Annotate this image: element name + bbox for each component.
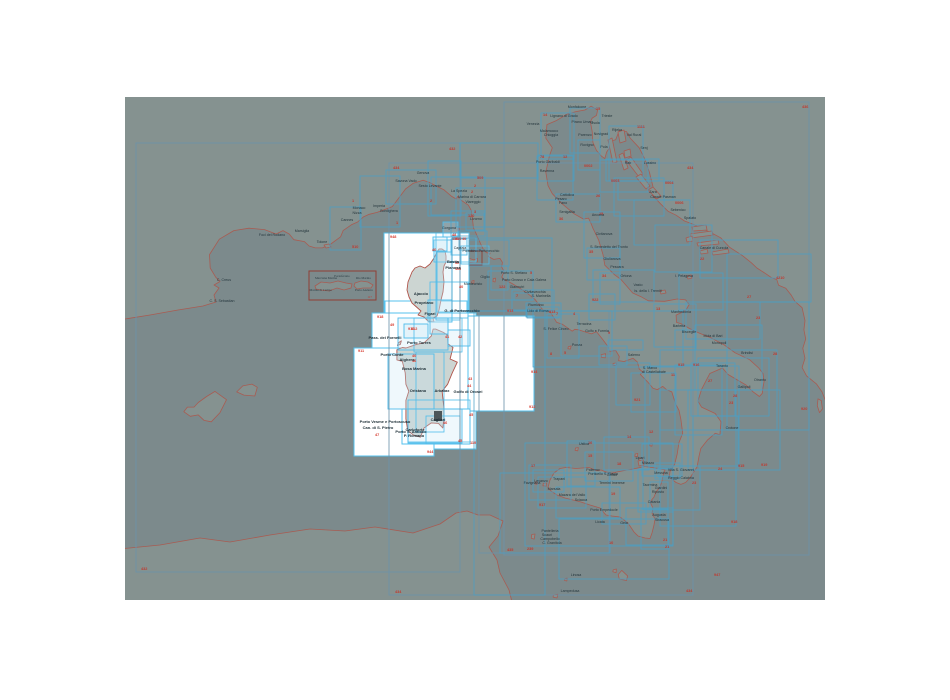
svg-text:Giglio: Giglio	[480, 275, 489, 279]
svg-text:C. Granitola: C. Granitola	[542, 541, 561, 545]
svg-text:919: 919	[761, 463, 767, 467]
svg-text:Val Rural: Val Rural	[627, 133, 642, 137]
svg-text:239: 239	[527, 547, 533, 551]
svg-text:12: 12	[649, 430, 653, 434]
svg-text:944: 944	[427, 450, 434, 454]
svg-text:Viareggio: Viareggio	[465, 200, 480, 204]
svg-text:Manfredonia: Manfredonia	[671, 310, 691, 314]
svg-text:911: 911	[358, 349, 364, 353]
svg-text:Ortona: Ortona	[621, 274, 632, 278]
svg-text:Termini Imerese: Termini Imerese	[599, 481, 625, 485]
svg-text:Sebenico: Sebenico	[671, 208, 686, 212]
svg-text:0002: 0002	[584, 164, 592, 168]
svg-text:12: 12	[563, 155, 567, 159]
svg-text:Bastia: Bastia	[447, 259, 460, 264]
svg-text:Parenzo: Parenzo	[578, 133, 591, 137]
svg-text:48: 48	[452, 233, 456, 237]
svg-text:47: 47	[375, 433, 379, 437]
svg-text:7: 7	[556, 312, 558, 316]
svg-text:922: 922	[592, 298, 598, 302]
svg-text:Milazzo: Milazzo	[642, 461, 654, 465]
svg-text:Lido di Roma: Lido di Roma	[527, 309, 548, 313]
svg-text:19: 19	[611, 492, 615, 496]
svg-text:Ancona: Ancona	[592, 213, 604, 217]
svg-text:Propriano: Propriano	[415, 300, 434, 305]
svg-text:Villa S. Giovanni: Villa S. Giovanni	[668, 468, 695, 472]
svg-text:Favignana: Favignana	[524, 481, 541, 485]
svg-text:23: 23	[756, 316, 760, 320]
svg-text:P. Romano: P. Romano	[404, 433, 425, 438]
svg-text:432: 432	[449, 147, 455, 151]
svg-text:5: 5	[530, 271, 532, 275]
svg-text:117: 117	[367, 295, 372, 299]
svg-text:918: 918	[731, 520, 737, 524]
svg-text:Pescara: Pescara	[610, 265, 623, 269]
svg-text:1: 1	[352, 199, 354, 203]
svg-text:G. di Portovecchio: G. di Portovecchio	[444, 308, 480, 313]
svg-text:912: 912	[408, 327, 414, 331]
svg-text:40: 40	[459, 285, 463, 289]
svg-text:Livorno: Livorno	[470, 217, 482, 221]
svg-text:Rio Marina: Rio Marina	[356, 276, 371, 280]
svg-text:Gallipoli: Gallipoli	[738, 385, 751, 389]
svg-text:15: 15	[596, 107, 600, 111]
svg-text:21: 21	[665, 545, 669, 549]
svg-text:434: 434	[395, 590, 402, 594]
svg-text:Fano: Fano	[559, 201, 567, 205]
svg-text:28: 28	[773, 352, 777, 356]
svg-text:Alghero: Alghero	[399, 357, 415, 362]
svg-text:Marciana Marina: Marciana Marina	[315, 276, 338, 280]
svg-text:Trapani: Trapani	[553, 477, 565, 481]
svg-text:15: 15	[588, 454, 592, 458]
svg-text:Monopoli: Monopoli	[712, 341, 727, 345]
svg-text:Imperia: Imperia	[373, 204, 385, 208]
svg-text:Linosa: Linosa	[571, 573, 582, 577]
svg-text:Crotone: Crotone	[726, 426, 739, 430]
svg-text:Sesto Levante: Sesto Levante	[419, 184, 442, 188]
svg-text:Siracusa: Siracusa	[655, 518, 669, 522]
svg-text:Rovigno: Rovigno	[580, 143, 593, 147]
svg-text:434: 434	[687, 166, 694, 170]
svg-text:Mola di Bari: Mola di Bari	[704, 334, 723, 338]
svg-text:S. Marinella: S. Marinella	[532, 294, 551, 298]
svg-text:Augusta: Augusta	[652, 513, 665, 517]
svg-text:Isola: Isola	[592, 121, 600, 125]
svg-text:Pass. dei Fornelli: Pass. dei Fornelli	[369, 335, 402, 340]
svg-text:2: 2	[430, 199, 432, 203]
svg-text:Lussino: Lussino	[644, 161, 656, 165]
svg-text:Fiumicino: Fiumicino	[528, 303, 543, 307]
svg-text:0003: 0003	[611, 179, 619, 183]
svg-text:18: 18	[617, 462, 621, 466]
svg-text:1111: 1111	[637, 125, 645, 129]
svg-text:Gela: Gela	[620, 521, 628, 525]
svg-text:Giulianova: Giulianova	[604, 257, 621, 261]
svg-text:Savona Vado: Savona Vado	[395, 179, 416, 183]
svg-text:Taranto: Taranto	[716, 364, 728, 368]
svg-text:49: 49	[390, 323, 394, 327]
svg-text:21: 21	[663, 538, 667, 542]
svg-text:Catania: Catania	[648, 500, 660, 504]
svg-text:Cagliari: Cagliari	[431, 417, 446, 422]
svg-text:Arbatax: Arbatax	[435, 388, 451, 393]
svg-text:Marsala: Marsala	[548, 487, 561, 491]
svg-text:Rab: Rab	[625, 161, 632, 165]
svg-text:510: 510	[352, 245, 358, 249]
svg-text:Portovecchio: Portovecchio	[479, 249, 500, 253]
svg-text:42: 42	[458, 335, 462, 339]
svg-text:Canale di Curzola: Canale di Curzola	[700, 246, 729, 250]
svg-text:43: 43	[468, 377, 472, 381]
svg-text:28: 28	[733, 394, 737, 398]
svg-text:Cannes: Cannes	[341, 218, 354, 222]
svg-text:Can. di S. Pietro: Can. di S. Pietro	[363, 425, 394, 430]
svg-text:23: 23	[729, 401, 733, 405]
svg-text:S. Benedetto del Tronto: S. Benedetto del Tronto	[590, 245, 628, 249]
svg-text:36: 36	[559, 217, 563, 221]
svg-text:C. Creus: C. Creus	[217, 278, 231, 282]
svg-text:1: 1	[396, 221, 398, 225]
svg-text:Mazara del Vallo: Mazara del Vallo	[559, 493, 586, 497]
svg-text:Foci del Rodano: Foci del Rodano	[259, 233, 285, 237]
svg-text:78: 78	[540, 155, 544, 159]
svg-text:5: 5	[564, 351, 566, 355]
svg-text:Figari: Figari	[425, 311, 436, 316]
svg-text:C. S. Sebastian: C. S. Sebastian	[210, 299, 235, 303]
svg-text:Golfo di Orosei: Golfo di Orosei	[454, 389, 483, 394]
svg-text:Monaco: Monaco	[353, 206, 366, 210]
svg-text:920: 920	[801, 407, 807, 411]
svg-text:Ponza: Ponza	[572, 343, 582, 347]
svg-text:13: 13	[656, 307, 660, 311]
svg-text:436: 436	[802, 105, 808, 109]
svg-text:Porto Empedocle: Porto Empedocle	[590, 508, 618, 512]
svg-text:0006: 0006	[675, 201, 683, 205]
svg-text:Montecristo: Montecristo	[464, 282, 483, 286]
svg-text:La Spezia: La Spezia	[451, 189, 467, 193]
svg-text:Lampedusa: Lampedusa	[561, 589, 580, 593]
svg-text:Lipari: Lipari	[636, 456, 645, 460]
svg-text:Nizza: Nizza	[353, 211, 362, 215]
svg-text:Sciacca: Sciacca	[575, 498, 588, 502]
svg-text:Trieste: Trieste	[602, 114, 613, 118]
svg-text:Novigrad: Novigrad	[594, 132, 608, 136]
svg-text:Pianosa: Pianosa	[445, 265, 461, 270]
svg-text:948: 948	[390, 235, 396, 239]
svg-text:Marina di Campo: Marina di Campo	[310, 288, 333, 292]
svg-text:27: 27	[747, 295, 751, 299]
svg-text:Messina: Messina	[654, 471, 667, 475]
svg-text:Senigallia: Senigallia	[559, 210, 575, 214]
svg-text:Giannutri: Giannutri	[510, 285, 525, 289]
svg-text:Venezia: Venezia	[527, 122, 540, 126]
svg-text:Rijeka: Rijeka	[612, 128, 622, 132]
svg-text:23: 23	[692, 481, 696, 485]
svg-text:27: 27	[708, 379, 712, 383]
svg-text:Porto Torres: Porto Torres	[407, 340, 431, 345]
svg-text:22: 22	[700, 257, 704, 261]
svg-text:Monfalcone: Monfalcone	[568, 105, 587, 109]
svg-text:910: 910	[455, 237, 461, 241]
svg-text:Chioggia: Chioggia	[544, 133, 558, 137]
svg-text:914: 914	[531, 370, 538, 374]
svg-text:Lignano di Grado: Lignano di Grado	[550, 114, 578, 118]
svg-text:Porto S. Stefano: Porto S. Stefano	[501, 271, 527, 275]
svg-text:11: 11	[671, 373, 675, 377]
svg-text:913: 913	[549, 310, 555, 314]
svg-text:Is. della I. Tremiti: Is. della I. Tremiti	[634, 289, 661, 293]
svg-text:S. Felice Circeo: S. Felice Circeo	[543, 327, 568, 331]
svg-text:119: 119	[470, 441, 476, 445]
svg-text:Porticello S. Flavia: Porticello S. Flavia	[588, 472, 618, 476]
svg-text:Tolone: Tolone	[317, 240, 328, 244]
svg-text:917: 917	[539, 503, 545, 507]
svg-text:2: 2	[471, 190, 473, 194]
svg-text:35: 35	[589, 250, 593, 254]
svg-text:Bordighera: Bordighera	[380, 209, 398, 213]
svg-text:434: 434	[393, 166, 400, 170]
svg-text:509: 509	[477, 176, 483, 180]
svg-text:Spalato: Spalato	[684, 216, 696, 220]
svg-text:17: 17	[531, 464, 535, 468]
svg-text:Ajaccio: Ajaccio	[414, 291, 429, 296]
svg-text:Pola: Pola	[600, 145, 607, 149]
svg-text:45: 45	[469, 413, 473, 417]
svg-text:Oristano: Oristano	[410, 388, 427, 393]
svg-text:di Castellabate: di Castellabate	[642, 370, 666, 374]
svg-text:7: 7	[516, 294, 518, 298]
svg-text:Bosa Marina: Bosa Marina	[402, 366, 427, 371]
svg-text:Canale Pasman: Canale Pasman	[650, 195, 676, 199]
svg-text:915: 915	[738, 464, 744, 468]
svg-text:Marsiglia: Marsiglia	[295, 229, 309, 233]
svg-text:947: 947	[714, 573, 720, 577]
svg-text:Genova: Genova	[417, 171, 430, 175]
svg-text:Porto Grosso e Cala Galera: Porto Grosso e Cala Galera	[502, 278, 546, 282]
svg-text:4210: 4210	[776, 276, 784, 280]
svg-text:8: 8	[550, 352, 552, 356]
svg-text:2: 2	[474, 184, 476, 188]
svg-text:40: 40	[462, 237, 466, 241]
svg-text:Porto Vesme e Portoscuso: Porto Vesme e Portoscuso	[360, 419, 411, 424]
svg-text:915: 915	[678, 363, 684, 367]
svg-text:Bisceglie: Bisceglie	[682, 330, 696, 334]
svg-text:Civitanova: Civitanova	[596, 232, 613, 236]
svg-text:Gorgona: Gorgona	[442, 226, 456, 230]
svg-text:Porto Azzurro: Porto Azzurro	[355, 288, 373, 292]
svg-text:432: 432	[141, 567, 147, 571]
svg-text:Barletta: Barletta	[673, 324, 685, 328]
svg-text:Senj: Senj	[640, 146, 647, 150]
svg-text:41: 41	[445, 335, 449, 339]
svg-text:Porto Garibaldi: Porto Garibaldi	[536, 160, 560, 164]
svg-text:I. Pelagosa: I. Pelagosa	[675, 274, 693, 278]
svg-text:122: 122	[499, 285, 505, 289]
svg-text:Riposto: Riposto	[652, 490, 664, 494]
svg-text:Terracina: Terracina	[577, 322, 592, 326]
svg-text:Ustica: Ustica	[579, 442, 589, 446]
svg-text:Ravenna: Ravenna	[540, 169, 554, 173]
svg-text:Piombino: Piombino	[463, 249, 478, 253]
svg-text:435: 435	[507, 548, 513, 552]
svg-text:Pirano Umag: Pirano Umag	[572, 120, 593, 124]
svg-text:Zara: Zara	[649, 190, 656, 194]
svg-text:921: 921	[634, 398, 640, 402]
svg-text:Golfo e Formia: Golfo e Formia	[585, 329, 609, 333]
svg-text:Vasto: Vasto	[634, 283, 643, 287]
svg-text:916: 916	[693, 363, 699, 367]
svg-text:0004: 0004	[665, 181, 674, 185]
svg-text:918: 918	[377, 315, 383, 319]
svg-text:434: 434	[686, 589, 693, 593]
svg-text:912: 912	[529, 405, 535, 409]
svg-text:Marina di Carrara: Marina di Carrara	[458, 195, 486, 199]
svg-text:10: 10	[609, 541, 613, 545]
svg-text:Licata: Licata	[595, 520, 605, 524]
svg-text:Reggio Calabria: Reggio Calabria	[668, 476, 694, 480]
svg-text:45: 45	[458, 439, 462, 443]
svg-text:913: 913	[507, 309, 513, 313]
svg-text:40: 40	[432, 248, 436, 252]
svg-text:26: 26	[596, 194, 600, 198]
svg-text:Salerno: Salerno	[628, 353, 640, 357]
svg-text:Otranto: Otranto	[754, 378, 766, 382]
svg-text:Brindisi: Brindisi	[741, 351, 753, 355]
